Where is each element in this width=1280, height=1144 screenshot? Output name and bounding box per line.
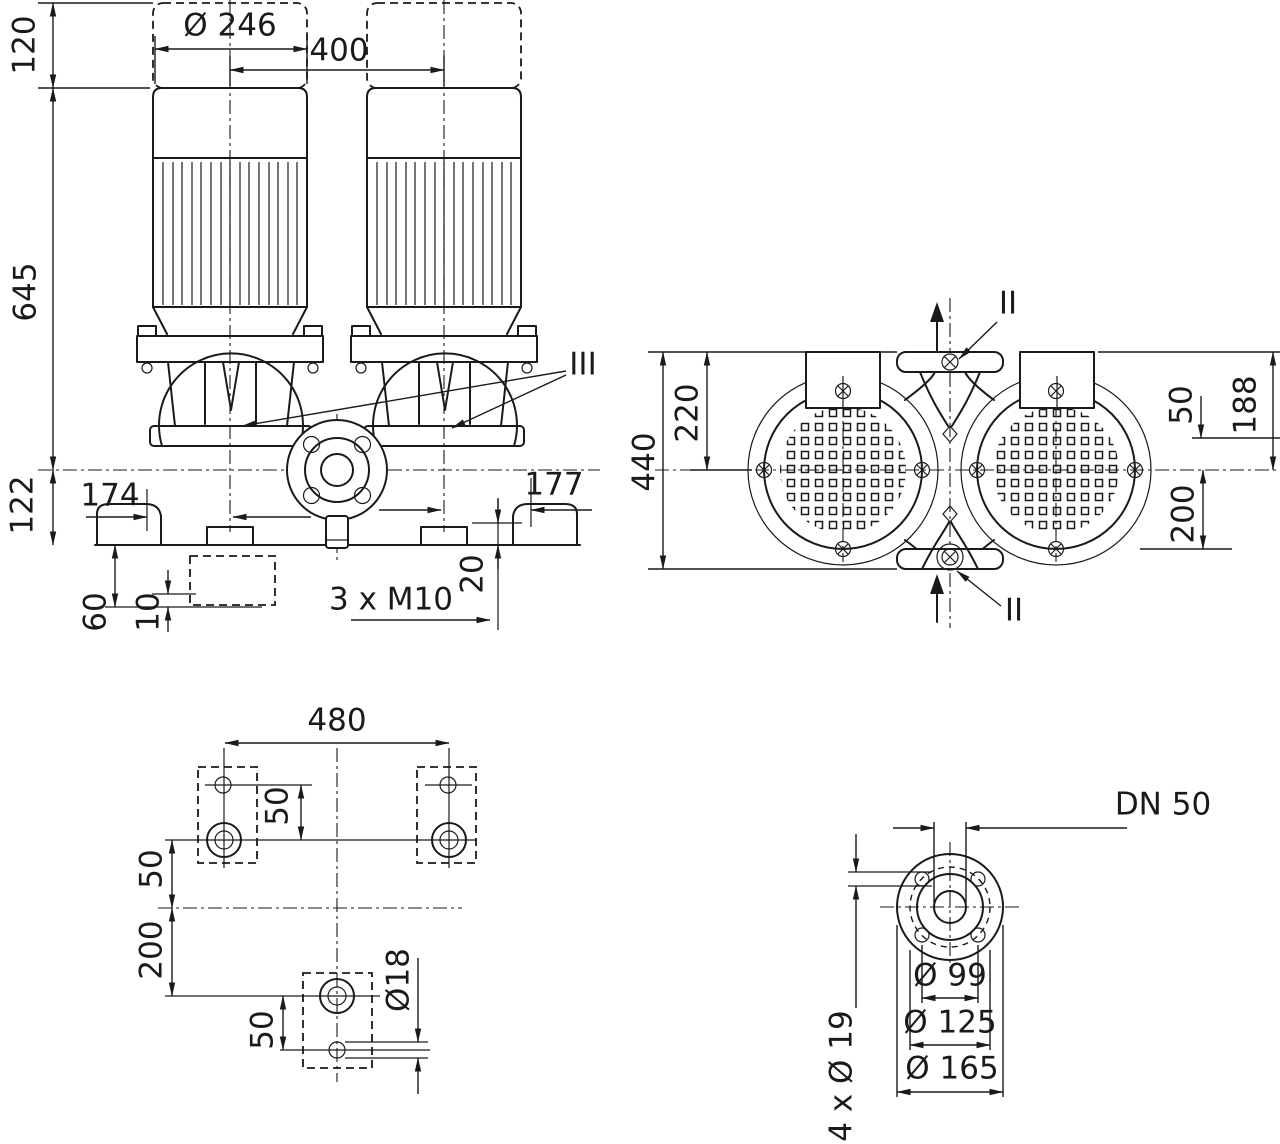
dim-50-bottom-label: 50 (245, 1010, 281, 1049)
dim-122-label: 122 (5, 475, 41, 534)
top-view: II II 440 220 50 188 200 (627, 286, 1280, 629)
drawing-canvas: 120 645 122 Ø 246 400 174 177 20 3 x M10… (0, 0, 1280, 1144)
flange-detail-view: DN 50 Ø 99 Ø 125 Ø 165 4 x Ø 19 (824, 787, 1212, 1142)
dim-20-label: 20 (455, 554, 491, 593)
pump-dimension-drawing: 120 645 122 Ø 246 400 174 177 20 3 x M10… (0, 0, 1280, 1144)
section-marker-ii-bottom: II (1005, 593, 1023, 629)
dim-200-label: 200 (1166, 484, 1202, 543)
dim-188-label: 188 (1228, 375, 1264, 434)
foundation-recess-hidden (190, 556, 275, 605)
plan-dimensions: 480 50 50 200 50 Ø18 (134, 703, 450, 1095)
dim-50-top-label: 50 (260, 786, 296, 825)
dim-120-label: 120 (7, 15, 43, 74)
dim-18-label: Ø18 (381, 948, 417, 1012)
dim-50-left-label: 50 (134, 849, 170, 888)
dim-99-label: Ø 99 (913, 958, 987, 994)
top-dimensions: 440 220 50 188 200 (627, 352, 1280, 569)
dim-50-label: 50 (1164, 385, 1200, 424)
plan-view: 480 50 50 200 50 Ø18 (134, 703, 478, 1095)
suction-flange (287, 420, 387, 548)
dim-174-label: 174 (80, 478, 139, 514)
dim-m10-label: 3 x M10 (329, 582, 453, 618)
dim-165-label: Ø 165 (905, 1051, 998, 1087)
dim-125-label: Ø 125 (903, 1005, 996, 1041)
dim-400-label: 400 (309, 33, 368, 69)
motor-fins (377, 162, 511, 305)
drain-plug (326, 516, 348, 548)
dim-220-label: 220 (670, 383, 706, 442)
centerlines (880, 842, 1020, 972)
motor-fins (163, 162, 297, 305)
dim-10-label: 10 (131, 592, 167, 631)
dim-246-label: Ø 246 (183, 8, 276, 44)
dim-60-label: 60 (78, 592, 114, 631)
flow-arrow-icon (930, 302, 944, 622)
lantern (168, 362, 294, 426)
section-marker-iii: III (569, 347, 596, 383)
dim-dn50-label: DN 50 (1115, 787, 1211, 823)
lantern (382, 362, 508, 426)
flange-dimensions: DN 50 Ø 99 Ø 125 Ø 165 4 x Ø 19 (824, 787, 1212, 1142)
bottom-port-flange (897, 549, 1003, 569)
dim-19-label: 4 x Ø 19 (824, 1010, 860, 1141)
section-marker-ii-top: II (999, 286, 1017, 322)
left-volute (159, 353, 303, 446)
dim-177-label: 177 (524, 467, 583, 503)
dim-480-label: 480 (307, 703, 366, 739)
dim-440-label: 440 (627, 432, 663, 491)
front-view: 120 645 122 Ø 246 400 174 177 20 3 x M10… (5, 0, 601, 632)
dim-645-label: 645 (8, 262, 44, 321)
dim-200-left-label: 200 (134, 920, 170, 979)
